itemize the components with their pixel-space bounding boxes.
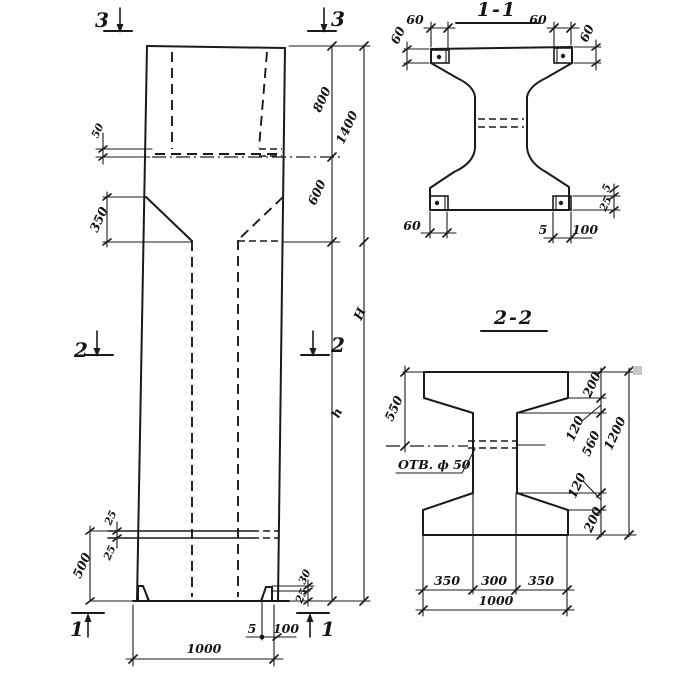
hole-label: ОТВ. ф 50 [398, 457, 471, 472]
section-2-2-outline [423, 372, 568, 535]
section-2-2-hole [386, 441, 545, 448]
dim-label-1400: 1400 [332, 108, 360, 146]
column-taper [103, 197, 340, 242]
dim-label-h: h [328, 405, 345, 420]
section-1-1-outline [430, 47, 572, 210]
dim-head-plate: 50 [89, 121, 107, 164]
dim-label-350-left: 350 [434, 573, 460, 588]
column-working-drawing: 50 350 25 25 [0, 0, 700, 700]
dim-label-1000-s2: 1000 [479, 593, 514, 608]
dim-label-600: 600 [304, 177, 329, 207]
dim-label-1200: 1200 [600, 414, 628, 452]
marker-2-left-label: 2 [73, 338, 88, 362]
dim-label-60-tr: 60 [529, 12, 547, 27]
dim-label-H: H [350, 304, 370, 323]
base-slot: 25 25 [101, 509, 278, 563]
dim-label-5: 5 [248, 621, 257, 636]
dim-label-60-tl-rot: 60 [387, 24, 408, 46]
section-2-2-title: 2-2 [481, 307, 547, 331]
dim-label-200-top: 200 [579, 369, 604, 400]
dim-1-1-top-left: 60 60 [387, 12, 455, 70]
dim-label-100-br: 100 [572, 222, 598, 237]
dim-label-60-bl: 60 [403, 218, 421, 233]
scan-artifact [633, 366, 642, 375]
dim-2-2-right-stack: 200 120 560 120 200 1200 [517, 367, 636, 539]
dim-label-5-br: 5 [539, 222, 548, 237]
dim-label-300: 300 [481, 573, 507, 588]
marker-2-right-label: 2 [330, 333, 345, 357]
dim-label-5-r: 5 [600, 182, 614, 194]
dim-foot-plate: 5 100 [246, 601, 299, 640]
column-web-hidden-lines [192, 240, 238, 597]
section-1-1-title-label: 1-1 [477, 0, 517, 21]
marker-3-right-label: 3 [331, 7, 345, 31]
dim-1-1-bottom-right: 5 100 5 25 [539, 182, 620, 243]
dim-2-2-left: 550 [381, 366, 424, 452]
marker-1-left-label: 1 [70, 617, 84, 641]
dim-label-50: 50 [89, 121, 106, 140]
dim-width-1000: 1000 [126, 605, 283, 666]
dim-chain-right: 800 600 1400 h H [283, 42, 370, 605]
column-feet [138, 586, 272, 601]
section-marker-1-right: 1 [297, 613, 335, 641]
dim-label-350-right: 350 [528, 573, 554, 588]
dim-label-120-bottom: 120 [564, 470, 589, 500]
section-2-2-title-label: 2-2 [493, 307, 534, 329]
dim-label-slot-lower: 25 [101, 544, 118, 563]
dim-1-1-bottom-left: 60 [403, 212, 456, 238]
section-marker-1-left: 1 [70, 613, 104, 641]
dim-label-60-tr-rot: 60 [576, 22, 597, 44]
dim-1-1-top-right: 60 60 [529, 12, 601, 70]
dim-label-1000: 1000 [187, 641, 222, 656]
section-marker-2-left: 2 [73, 331, 113, 362]
embedded-plates-1-1 [430, 48, 572, 210]
column-outline [133, 46, 289, 601]
section-1-1-title: 1-1 [456, 0, 539, 23]
dim-2-2-bottom: 350 300 350 1000 [416, 493, 574, 616]
section-1-1-view: 1-1 60 60 [387, 0, 620, 243]
marker-3-left-label: 3 [95, 8, 109, 32]
dim-taper: 350 [86, 192, 111, 247]
section-1-1-hole-hidden-lines [478, 119, 524, 127]
section-marker-3-right: 3 [308, 7, 345, 33]
section-2-2-view: 2-2 550 ОТВ. ф 50 200 120 [381, 307, 642, 616]
section-marker-2-right: 2 [301, 331, 345, 357]
dim-label-100: 100 [273, 621, 299, 636]
column-head-hidden-lines [96, 52, 340, 157]
hole-callout: ОТВ. ф 50 [396, 449, 475, 473]
section-marker-3-left: 3 [95, 8, 132, 33]
dim-label-550: 550 [381, 393, 406, 423]
dim-label-120-top: 120 [562, 413, 587, 443]
dim-label-60-tl: 60 [406, 12, 424, 27]
elevation-view: 50 350 25 25 [69, 7, 370, 666]
dim-label-800: 800 [309, 84, 334, 114]
drawing-canvas: 50 350 25 25 [0, 0, 700, 700]
marker-1-right-label: 1 [321, 617, 335, 641]
dim-label-560: 560 [578, 428, 603, 458]
